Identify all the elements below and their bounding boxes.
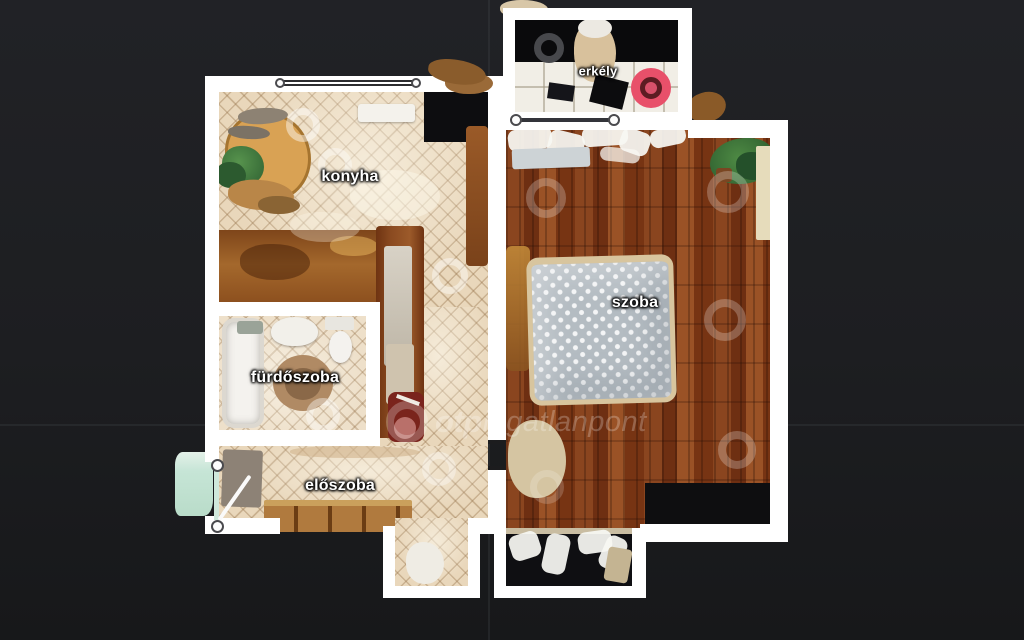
wall xyxy=(205,430,380,446)
room-label-erkely: erkély xyxy=(579,64,618,79)
room-label-furdoszoba: fürdőszoba xyxy=(251,369,339,387)
sweep-point-marker[interactable] xyxy=(526,178,566,218)
camera-marker[interactable] xyxy=(534,33,564,63)
wall xyxy=(678,8,692,120)
wall xyxy=(205,76,219,316)
floor-sheen xyxy=(290,212,360,242)
kitchen-counter-shadow xyxy=(240,244,310,280)
wall xyxy=(688,120,788,138)
entry-door-edge xyxy=(214,470,219,520)
wall xyxy=(366,302,380,446)
otp-logo-ring-icon xyxy=(386,401,428,443)
sweep-point-marker[interactable] xyxy=(306,398,340,432)
sweep-point-marker[interactable] xyxy=(286,108,320,142)
wall xyxy=(494,586,646,598)
floorplan-viewer: erkély konyha szoba fürdőszoba előszoba … xyxy=(0,0,1024,640)
wall xyxy=(770,130,788,542)
washer-item xyxy=(237,321,263,334)
sweep-point-marker[interactable] xyxy=(530,470,564,504)
wall xyxy=(383,586,480,598)
kitchen-shelf xyxy=(358,104,415,122)
toilet-tank xyxy=(325,317,354,330)
toilet-bowl xyxy=(329,331,352,363)
sweep-point-marker[interactable] xyxy=(422,452,456,486)
room-label-konyha: konyha xyxy=(321,168,378,186)
door-hinge-point xyxy=(211,520,224,533)
balcony-figure-top xyxy=(578,18,612,38)
wall xyxy=(640,524,788,542)
dresser xyxy=(512,147,591,170)
doormat xyxy=(221,449,263,507)
room-label-eloszoba: előszoba xyxy=(305,477,375,495)
sweep-point-marker[interactable] xyxy=(707,171,749,213)
window-endpoint xyxy=(510,114,522,126)
wall xyxy=(488,76,506,444)
watermark: otp ingatlanpont xyxy=(386,401,647,443)
wall xyxy=(205,302,219,446)
sweep-point-marker[interactable] xyxy=(718,431,756,469)
door-hinge-point xyxy=(211,459,224,472)
balcony-window xyxy=(514,118,618,122)
bathroom-sink xyxy=(271,317,318,346)
door-jamb xyxy=(488,466,506,470)
lower-alcove-object xyxy=(406,542,444,584)
window-endpoint xyxy=(411,78,421,88)
wall xyxy=(503,8,515,114)
wall xyxy=(205,302,380,316)
room-label-szoba: szoba xyxy=(612,294,658,312)
window-endpoint xyxy=(275,78,285,88)
kitchen-window xyxy=(280,80,416,86)
wall xyxy=(503,8,691,20)
watermark-brand-bold: otp xyxy=(435,404,482,440)
balcony-scan-gap xyxy=(547,82,575,101)
active-camera-marker-center xyxy=(645,82,657,94)
kitchen-chair xyxy=(258,196,300,214)
sweep-point-marker[interactable] xyxy=(704,299,746,341)
watermark-brand-light: ingatlanpont xyxy=(483,406,647,439)
window-endpoint xyxy=(608,114,620,126)
bed xyxy=(526,254,677,406)
kitchen-cabinet-strip xyxy=(466,126,488,266)
sweep-point-marker[interactable] xyxy=(432,258,468,294)
hallway-clutter xyxy=(290,446,420,458)
wall xyxy=(488,466,506,534)
room-unscanned-corner xyxy=(645,483,770,528)
